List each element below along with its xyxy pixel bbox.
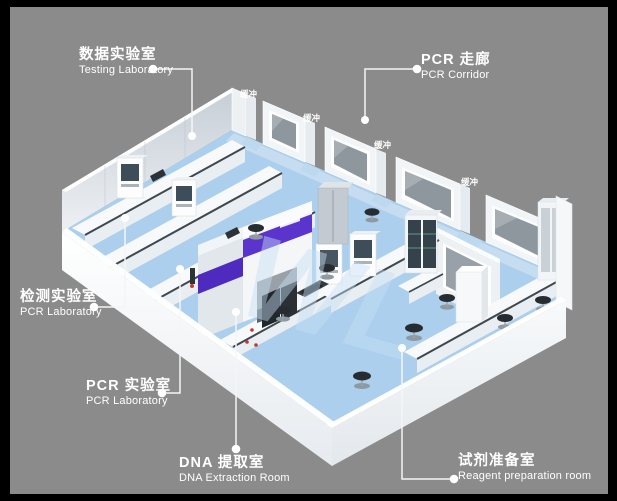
- callout-title-en: Testing Laboratory: [79, 64, 173, 76]
- callout-title-zh: 数据实验室: [79, 47, 173, 63]
- lab-floorplan-screenshot: 缓冲 缓冲 缓冲 缓冲: [0, 0, 617, 501]
- callout-pcr-corridor: PCR 走廊 PCR Corridor: [421, 52, 491, 82]
- callout-dna-extraction-room: DNA 提取室 DNA Extraction Room: [179, 455, 290, 485]
- callout-dot: [398, 344, 406, 352]
- buffer-room-label: 缓冲: [374, 140, 392, 150]
- callout-title-zh: 试剂准备室: [458, 453, 591, 469]
- callout-dot: [176, 265, 184, 273]
- callout-dot: [450, 475, 459, 484]
- callout-title-en: PCR Laboratory: [20, 306, 102, 318]
- callout-title-zh: PCR 走廊: [421, 52, 491, 68]
- callout-dot: [361, 116, 369, 124]
- callout-title-en: DNA Extraction Room: [179, 472, 290, 484]
- callout-pcr-laboratory: PCR 实验室 PCR Laboratory: [86, 378, 171, 408]
- callout-dot: [232, 445, 241, 454]
- callout-title-zh: 检测实验室: [20, 289, 102, 305]
- callout-dot: [232, 308, 240, 316]
- callout-title-en: Reagent preparation room: [458, 470, 591, 482]
- callout-dot: [121, 214, 129, 222]
- buffer-room-label: 缓冲: [461, 177, 479, 187]
- corner-wall: [556, 196, 572, 310]
- storage-cabinet: [456, 266, 488, 322]
- callout-title-zh: DNA 提取室: [179, 455, 290, 471]
- buffer-room-label: 缓冲: [303, 113, 321, 123]
- callout-reagent-preparation: 试剂准备室 Reagent preparation room: [458, 453, 591, 483]
- callout-title-en: PCR Corridor: [421, 69, 491, 81]
- buffer-room-label: 缓冲: [240, 89, 258, 99]
- callout-title-zh: PCR 实验室: [86, 378, 171, 394]
- callout-testing-laboratory: 数据实验室 Testing Laboratory: [79, 47, 173, 77]
- callout-title-en: PCR Laboratory: [86, 395, 171, 407]
- callout-detection-laboratory: 检测实验室 PCR Laboratory: [20, 289, 102, 319]
- callout-dot: [413, 65, 422, 74]
- callout-dot: [188, 132, 196, 140]
